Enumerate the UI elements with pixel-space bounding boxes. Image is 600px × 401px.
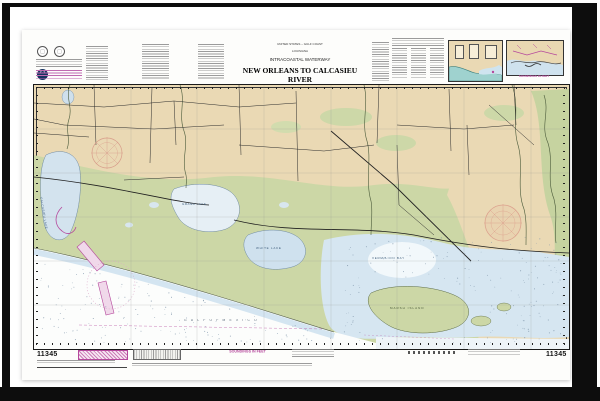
agency-logos: ◠ (37, 44, 81, 58)
marginal-note-block (142, 44, 169, 80)
soundings-note: SOUNDINGS IN FEET (222, 350, 273, 354)
map-graphic (34, 85, 569, 349)
tick-marks-left (36, 87, 38, 345)
certification-logo-icon (37, 46, 48, 57)
logarithmic-speed-scale (133, 349, 181, 360)
tick-marks-right (563, 87, 565, 345)
chart-series: INTRACOASTAL WATERWAY (248, 58, 353, 63)
edition-note-lines (37, 360, 115, 365)
publisher-note-lines (36, 59, 82, 68)
map-panel: CALCASIEU LAKE GRAND LAKE WHITE LAKE VER… (33, 84, 570, 350)
authorities-note-column (372, 42, 389, 82)
frame-edge-bottom (0, 387, 600, 401)
inset-locator-map (506, 40, 564, 76)
chart-state: LOUISIANA (265, 50, 335, 53)
abbreviations-table (392, 38, 444, 80)
certification-logo-icon (54, 46, 65, 57)
label-white-lake: WHITE LAKE (256, 247, 282, 250)
magenta-note-lines (36, 70, 82, 79)
margin-rule (37, 367, 127, 368)
bottom-note-block (292, 349, 334, 358)
tick-marks-top (36, 87, 565, 89)
chart-number-bottom-left: 11345 (37, 351, 58, 358)
bottom-dash-scale (408, 351, 458, 354)
marginal-note-column (86, 46, 108, 80)
chart-number-bottom-right: 11345 (546, 351, 567, 358)
chart-country: UNITED STATES – GULF COAST (265, 43, 335, 46)
label-gulf-of-mexico: G U L F O F M E X I C O (184, 319, 258, 322)
tick-marks-bottom (36, 343, 565, 345)
frame-edge-top (2, 3, 597, 7)
scale-bar-magenta (78, 350, 128, 360)
label-vermilion-bay: VERMILION BAY (372, 257, 405, 260)
label-grand-lake: GRAND LAKE (182, 203, 206, 206)
frame-edge-left (2, 3, 10, 401)
bottom-note-block (468, 349, 520, 355)
caution-note-lines (132, 363, 312, 367)
chart-title: NEW ORLEANS TO CALCASIEU RIVER (230, 66, 370, 84)
label-marsh-island: MARSH ISLAND (390, 307, 425, 310)
inset-diagram (448, 40, 503, 82)
framed-chart-photo: ◠ UNITED STATES – GULF COAST LOUISIANA I… (0, 0, 600, 401)
inset-caption: SOUNDINGS IN FEET (517, 75, 552, 78)
marginal-note-block (198, 44, 224, 80)
frame-edge-right (572, 3, 597, 401)
